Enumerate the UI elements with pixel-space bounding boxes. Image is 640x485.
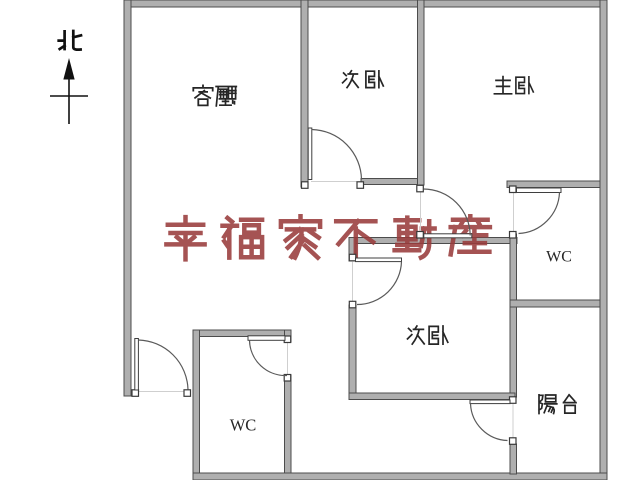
svg-text:WC: WC	[230, 416, 257, 435]
svg-text:WC: WC	[546, 249, 572, 266]
